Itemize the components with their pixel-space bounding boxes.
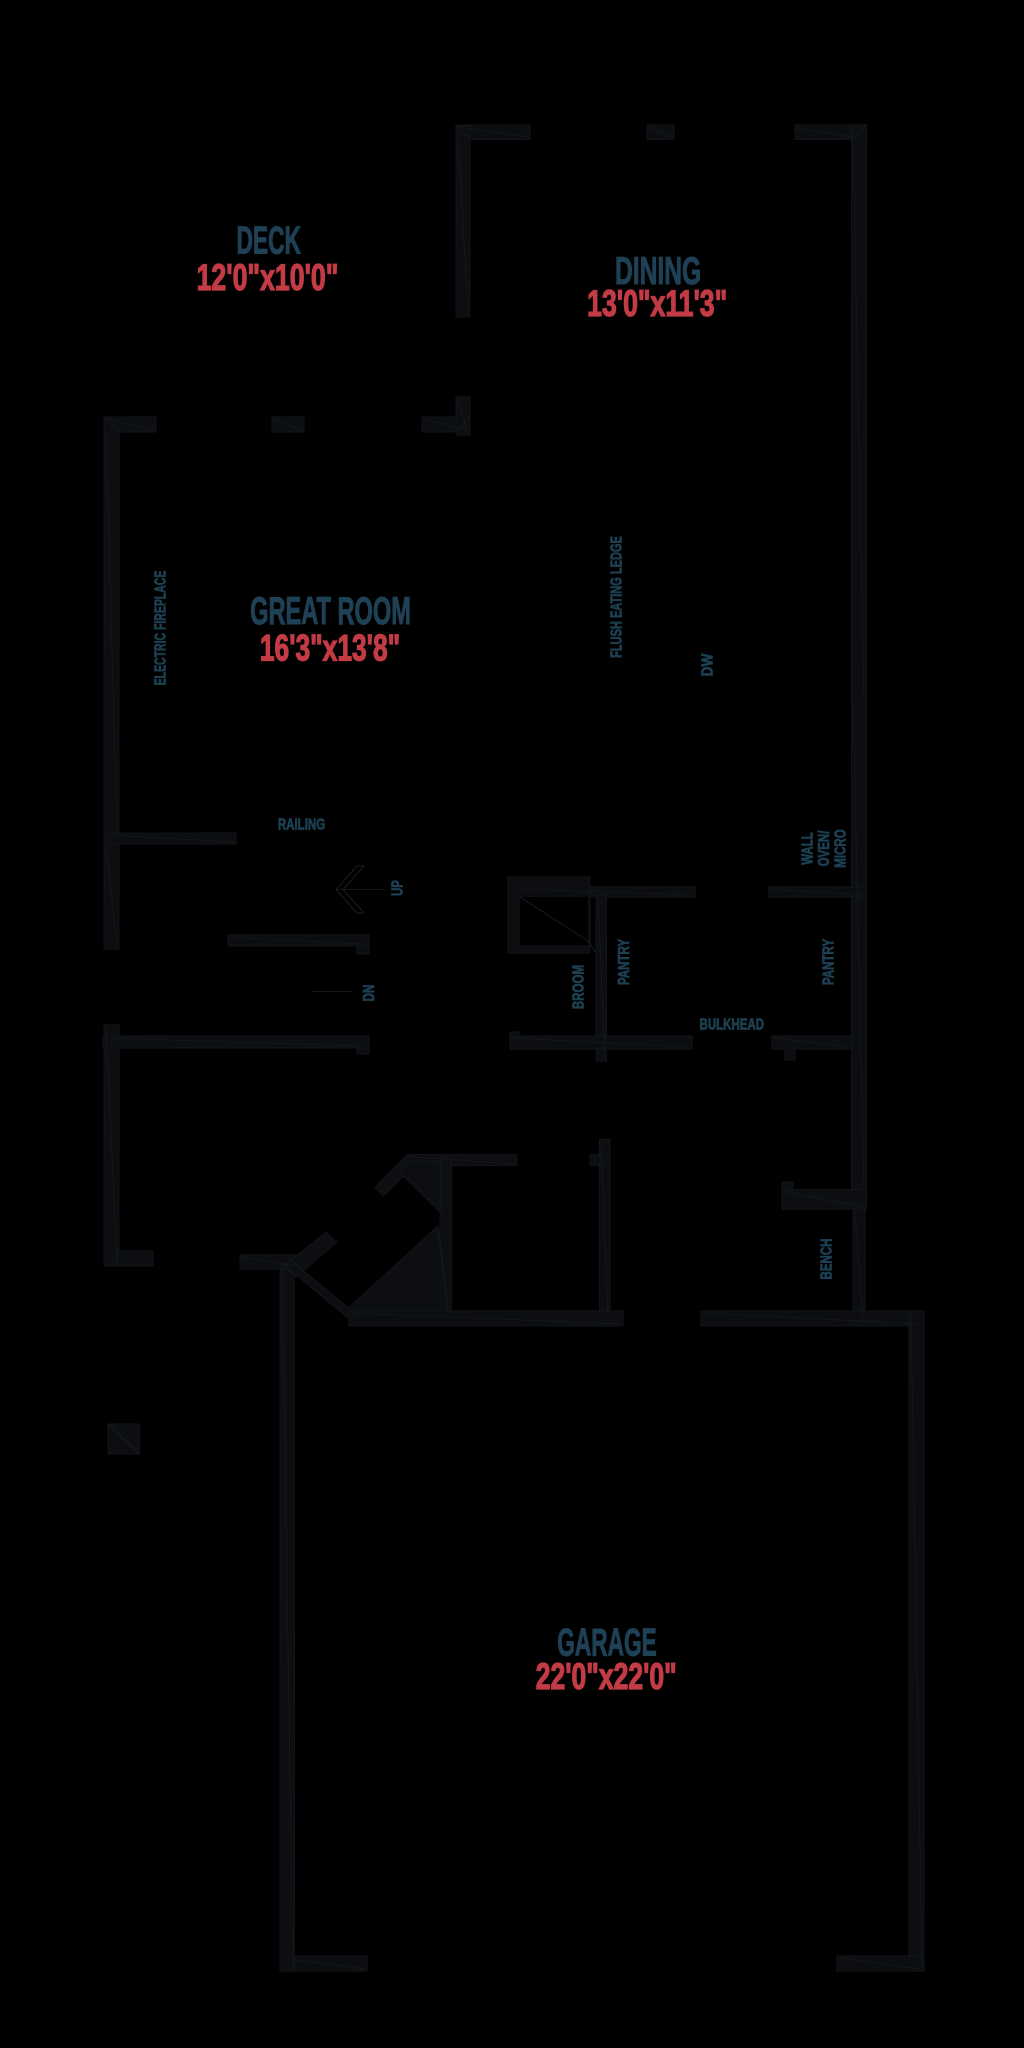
svg-text:UP: UP [387, 880, 405, 896]
svg-text:22'0"x22'0": 22'0"x22'0" [536, 1656, 677, 1697]
svg-text:13'0"x11'3": 13'0"x11'3" [587, 283, 727, 324]
svg-text:MICRO: MICRO [831, 829, 849, 868]
svg-text:DW: DW [700, 654, 717, 677]
svg-text:ELECTRIC FIREPLACE: ELECTRIC FIREPLACE [151, 571, 169, 686]
svg-text:BROOM: BROOM [569, 965, 587, 1009]
svg-text:PANTRY: PANTRY [614, 938, 632, 985]
svg-text:BULKHEAD: BULKHEAD [699, 1015, 764, 1033]
svg-text:12'0"x10'0": 12'0"x10'0" [197, 257, 339, 298]
svg-text:FLUSH EATING LEDGE: FLUSH EATING LEDGE [608, 536, 625, 658]
svg-text:PANTRY: PANTRY [819, 938, 837, 985]
svg-text:BENCH: BENCH [817, 1239, 835, 1280]
svg-text:DN: DN [359, 985, 377, 1002]
svg-text:DECK: DECK [236, 218, 301, 262]
svg-text:16'3"x13'8": 16'3"x13'8" [260, 627, 400, 668]
svg-text:RAILING: RAILING [278, 815, 325, 833]
